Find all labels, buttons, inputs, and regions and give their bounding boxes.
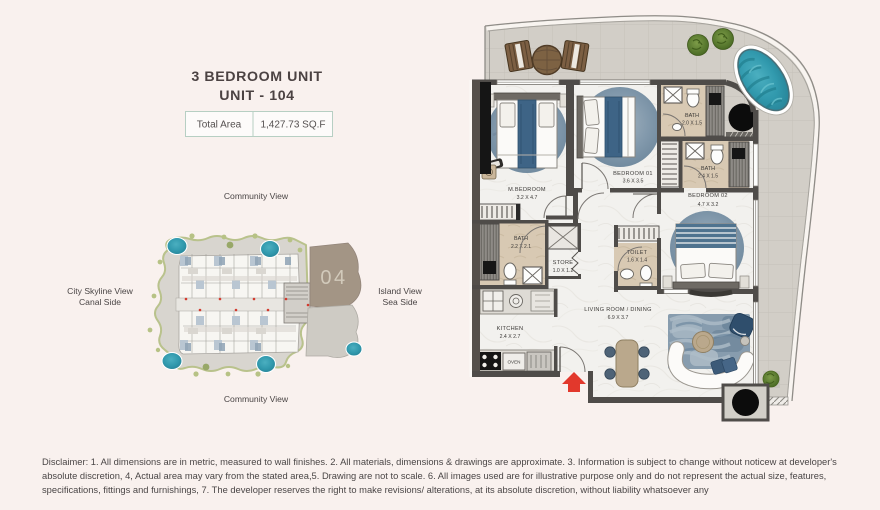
svg-text:1,427.73 SQ.F: 1,427.73 SQ.F — [260, 120, 325, 131]
svg-text:UNIT - 104: UNIT - 104 — [219, 88, 294, 104]
svg-text:1.0 X 1.2: 1.0 X 1.2 — [553, 268, 574, 274]
svg-text:BATH: BATH — [685, 113, 699, 119]
svg-text:3.2 X 4.7: 3.2 X 4.7 — [517, 195, 538, 201]
svg-text:OVEN: OVEN — [507, 360, 520, 365]
svg-text:BEDROOM 01: BEDROOM 01 — [613, 171, 653, 177]
svg-text:TOILET: TOILET — [627, 250, 648, 256]
svg-text:specifications, fittings and f: specifications, fittings and furnishings… — [42, 485, 709, 495]
svg-text:Canal Side: Canal Side — [79, 297, 121, 307]
svg-text:STORE: STORE — [553, 260, 574, 266]
svg-text:2.0 X 1.5: 2.0 X 1.5 — [682, 121, 702, 127]
svg-text:04: 04 — [320, 267, 347, 289]
svg-text:Community View: Community View — [224, 394, 289, 404]
svg-text:KITCHEN: KITCHEN — [497, 326, 524, 332]
svg-text:6.9 X 3.7: 6.9 X 3.7 — [608, 315, 629, 321]
svg-text:Total Area: Total Area — [197, 120, 242, 131]
svg-text:1.6 X 1.4: 1.6 X 1.4 — [627, 258, 647, 264]
svg-text:Community View: Community View — [224, 191, 289, 201]
svg-text:LIVING ROOM / DINING: LIVING ROOM / DINING — [584, 307, 652, 313]
svg-text:BATH: BATH — [701, 166, 715, 172]
svg-text:BATH: BATH — [514, 236, 528, 242]
svg-text:Disclaimer: 1. All dimensions: Disclaimer: 1. All dimensions are in met… — [42, 457, 837, 467]
svg-text:3 BEDROOM UNIT: 3 BEDROOM UNIT — [191, 69, 322, 85]
svg-text:3.6 X 3.5: 3.6 X 3.5 — [623, 179, 644, 185]
svg-text:absolute discretion, 4, Actual: absolute discretion, 4, Actual area may … — [42, 471, 826, 481]
svg-text:2.4 X 2.7: 2.4 X 2.7 — [500, 334, 521, 340]
svg-text:Island View: Island View — [378, 286, 423, 296]
svg-text:M.BEDROOM: M.BEDROOM — [508, 187, 546, 193]
svg-text:City Skyline View: City Skyline View — [67, 286, 134, 296]
svg-text:BEDROOM 02: BEDROOM 02 — [688, 193, 728, 199]
svg-text:4.7 X 3.2: 4.7 X 3.2 — [698, 202, 719, 208]
svg-text:Sea Side: Sea Side — [383, 297, 418, 307]
